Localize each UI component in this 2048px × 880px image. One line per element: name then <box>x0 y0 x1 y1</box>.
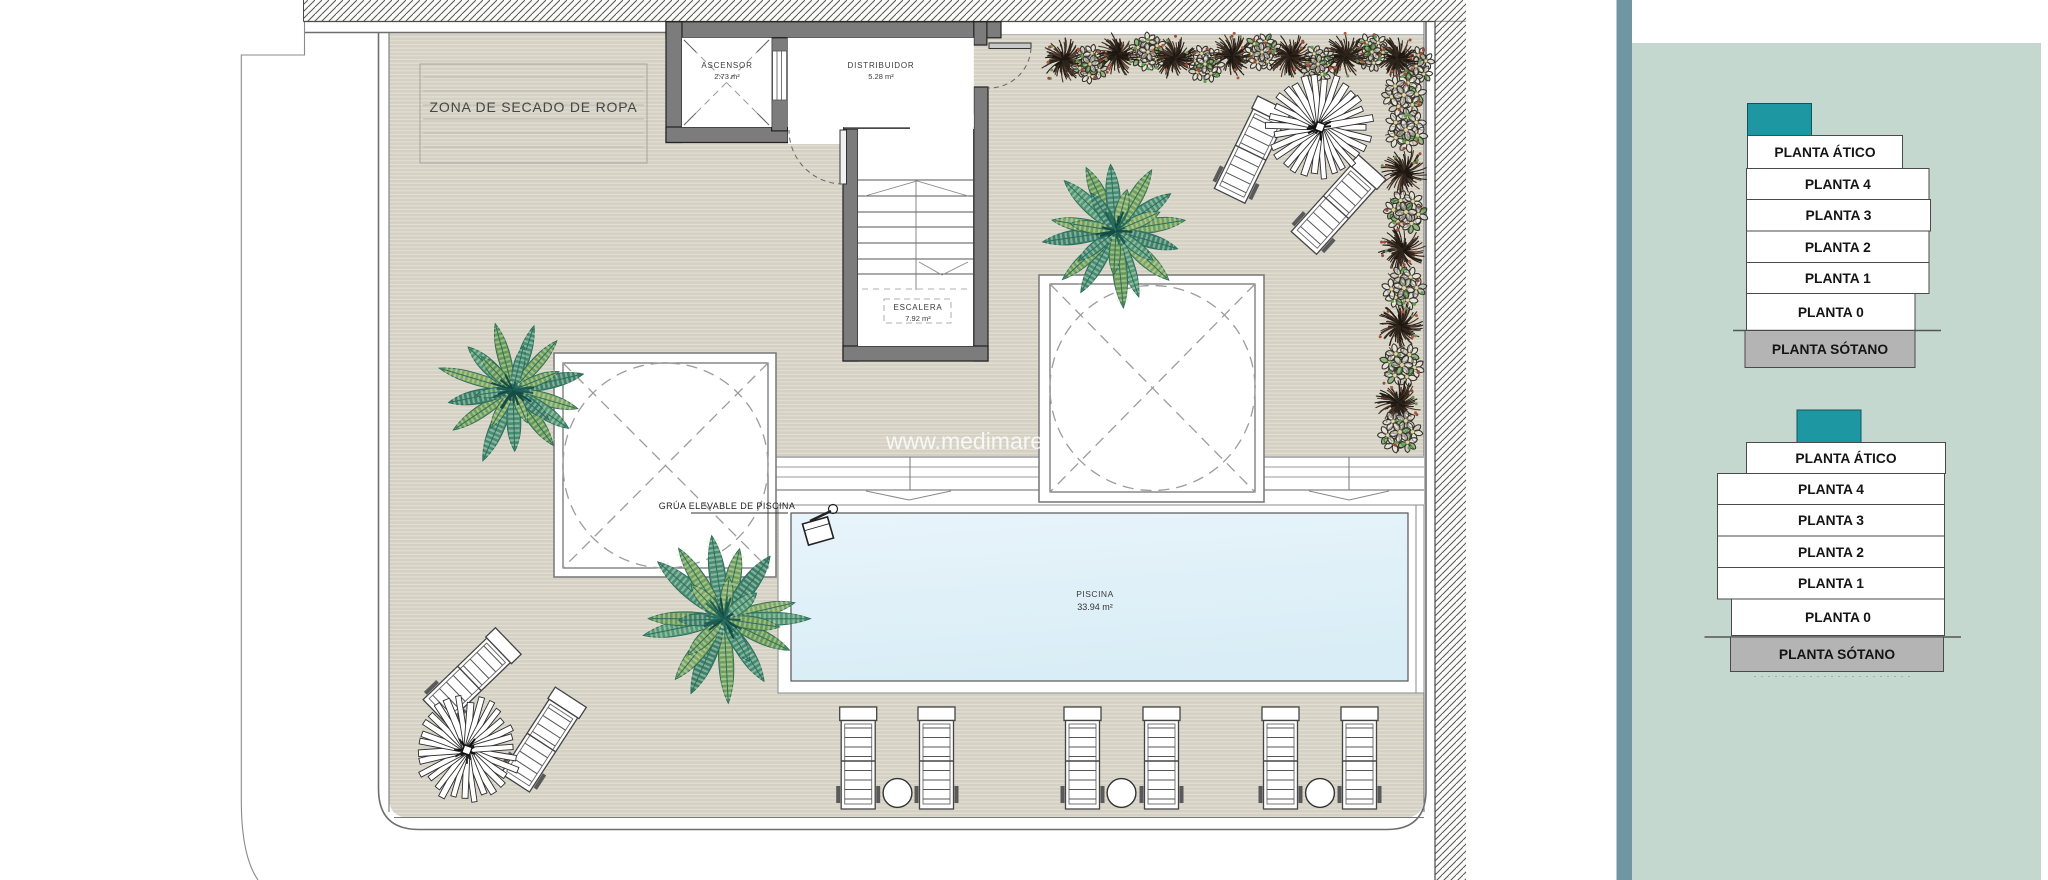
svg-text:PLANTA 3: PLANTA 3 <box>1806 208 1872 223</box>
svg-text:ZONA DE SECADO DE ROPA: ZONA DE SECADO DE ROPA <box>430 99 638 115</box>
svg-text:ASCENSOR: ASCENSOR <box>701 61 752 70</box>
svg-text:2.73 m²: 2.73 m² <box>714 72 740 81</box>
svg-text:PLANTA SÓTANO: PLANTA SÓTANO <box>1779 645 1896 662</box>
svg-text:PLANTA SÓTANO: PLANTA SÓTANO <box>1772 340 1889 357</box>
svg-text:PLANTA 3: PLANTA 3 <box>1798 513 1864 528</box>
svg-text:GRÚA ELEVABLE DE PISCINA: GRÚA ELEVABLE DE PISCINA <box>659 501 795 511</box>
svg-text:5.28 m²: 5.28 m² <box>868 72 894 81</box>
svg-text:PLANTA 4: PLANTA 4 <box>1805 177 1871 192</box>
svg-text:PLANTA 2: PLANTA 2 <box>1798 545 1864 560</box>
svg-text:33.94 m²: 33.94 m² <box>1077 602 1113 612</box>
svg-text:ESCALERA: ESCALERA <box>893 303 942 312</box>
svg-text:PLANTA 0: PLANTA 0 <box>1798 305 1864 320</box>
svg-text:PLANTA 1: PLANTA 1 <box>1798 576 1864 591</box>
svg-text:PISCINA: PISCINA <box>1076 589 1114 599</box>
svg-text:DISTRIBUIDOR: DISTRIBUIDOR <box>848 61 915 70</box>
svg-text:PLANTA 4: PLANTA 4 <box>1798 482 1864 497</box>
svg-text:PLANTA ÁTICO: PLANTA ÁTICO <box>1795 450 1896 466</box>
svg-text:PLANTA ÁTICO: PLANTA ÁTICO <box>1774 144 1875 160</box>
svg-text:PLANTA 0: PLANTA 0 <box>1805 610 1871 625</box>
svg-text:www.medimare: www.medimare <box>885 428 1043 454</box>
svg-text:PLANTA 2: PLANTA 2 <box>1805 240 1871 255</box>
svg-text:PLANTA 1: PLANTA 1 <box>1805 271 1871 286</box>
svg-text:7.92 m²: 7.92 m² <box>905 314 931 323</box>
